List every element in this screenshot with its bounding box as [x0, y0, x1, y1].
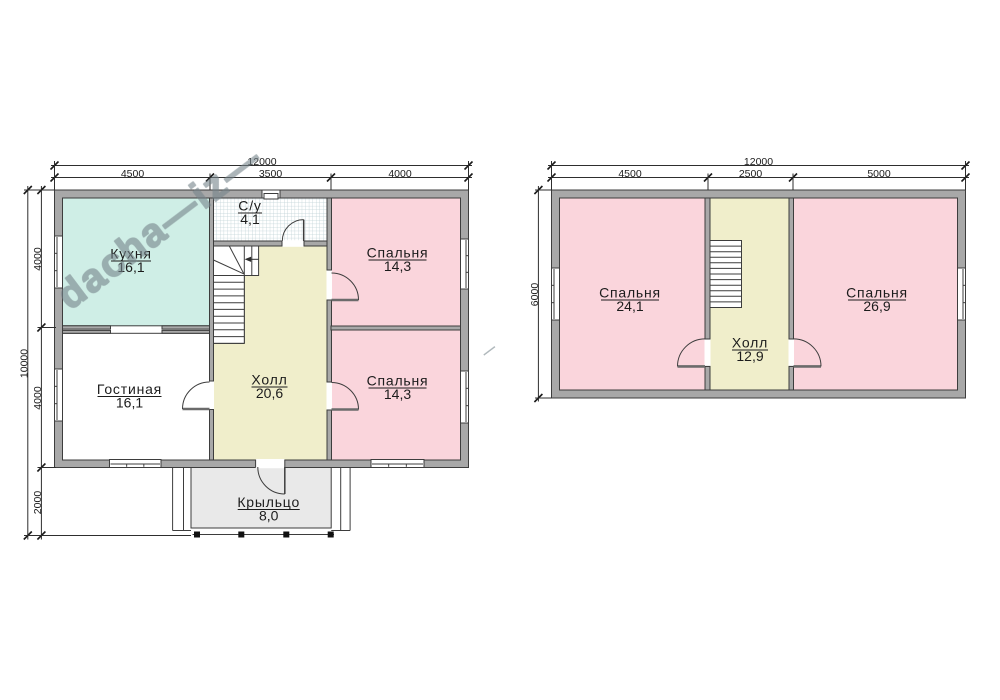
svg-text:14,3: 14,3: [384, 258, 411, 274]
svg-text:12000: 12000: [744, 156, 773, 168]
svg-text:4500: 4500: [121, 168, 145, 180]
svg-text:26,9: 26,9: [863, 298, 890, 314]
svg-text:4000: 4000: [32, 386, 44, 410]
svg-text:8,0: 8,0: [259, 508, 279, 524]
svg-text:4,1: 4,1: [240, 211, 260, 227]
svg-text:6000: 6000: [529, 283, 541, 307]
svg-text:—: —: [478, 339, 499, 360]
svg-text:20,6: 20,6: [256, 385, 283, 401]
svg-text:5000: 5000: [867, 168, 891, 180]
svg-text:12,9: 12,9: [736, 348, 763, 364]
svg-text:2000: 2000: [32, 491, 44, 515]
svg-text:14,3: 14,3: [384, 386, 411, 402]
svg-text:24,1: 24,1: [616, 298, 643, 314]
svg-text:2500: 2500: [739, 168, 763, 180]
svg-text:10000: 10000: [18, 349, 30, 378]
svg-text:16,1: 16,1: [116, 395, 143, 411]
svg-text:4000: 4000: [388, 168, 412, 180]
svg-text:4500: 4500: [618, 168, 642, 180]
svg-text:4000: 4000: [32, 247, 44, 271]
